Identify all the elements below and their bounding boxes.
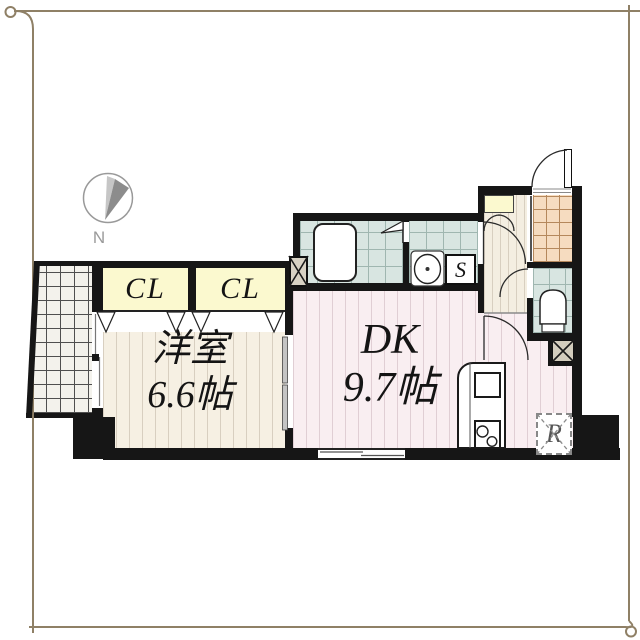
laundry-label: S — [455, 257, 466, 282]
wall-genkan-toilet — [533, 262, 572, 268]
wall-bottom-right-block — [573, 415, 619, 459]
closet-bottom-line — [103, 310, 285, 312]
refrigerator-label: R — [544, 419, 564, 448]
closet-right-label: CL — [196, 271, 285, 307]
entry-door-arc — [532, 150, 567, 187]
kitchen-stove — [474, 420, 501, 449]
western-room-label: 洋室 6.6帖 — [95, 326, 285, 418]
dining-kitchen-name: DK — [280, 316, 500, 364]
frame-curl-top-left — [6, 7, 16, 17]
shoe-cabinet — [484, 195, 514, 213]
entry-door-leaf — [564, 149, 572, 188]
dk-window-opening — [318, 448, 405, 460]
frame-curl-bottom-right — [626, 627, 636, 637]
laundry-space: S — [445, 254, 476, 285]
dining-kitchen-size: 9.7帖 — [280, 364, 500, 412]
western-room-size: 6.6帖 — [95, 372, 285, 418]
western-room-name: 洋室 — [95, 326, 285, 372]
entrance-genkan-floor — [533, 195, 572, 262]
compass-icon — [84, 174, 133, 223]
compass-label: N — [86, 228, 112, 248]
dining-kitchen-label: DK 9.7帖 — [280, 316, 500, 412]
toilet-floor — [533, 268, 572, 333]
wall-entry-top — [484, 186, 532, 195]
bath-door-opening — [403, 222, 409, 242]
wall-closet-divider — [188, 261, 196, 312]
washroom-door-opening — [478, 222, 484, 264]
pillar-box-left — [289, 256, 308, 287]
wall-bath-top — [293, 213, 482, 221]
wall-balcony-top — [34, 261, 92, 266]
floor-plan-canvas: S R CL CL 洋室 6.6帖 DK 9.7帖 N — [0, 0, 640, 640]
pillar-box-right — [552, 340, 574, 362]
balcony-floor — [32, 266, 92, 413]
wall-right — [572, 186, 582, 417]
bathroom-floor — [300, 221, 403, 284]
refrigerator-space: R — [536, 413, 572, 455]
toilet-door-opening — [527, 268, 533, 298]
closet-left-label: CL — [103, 271, 188, 307]
